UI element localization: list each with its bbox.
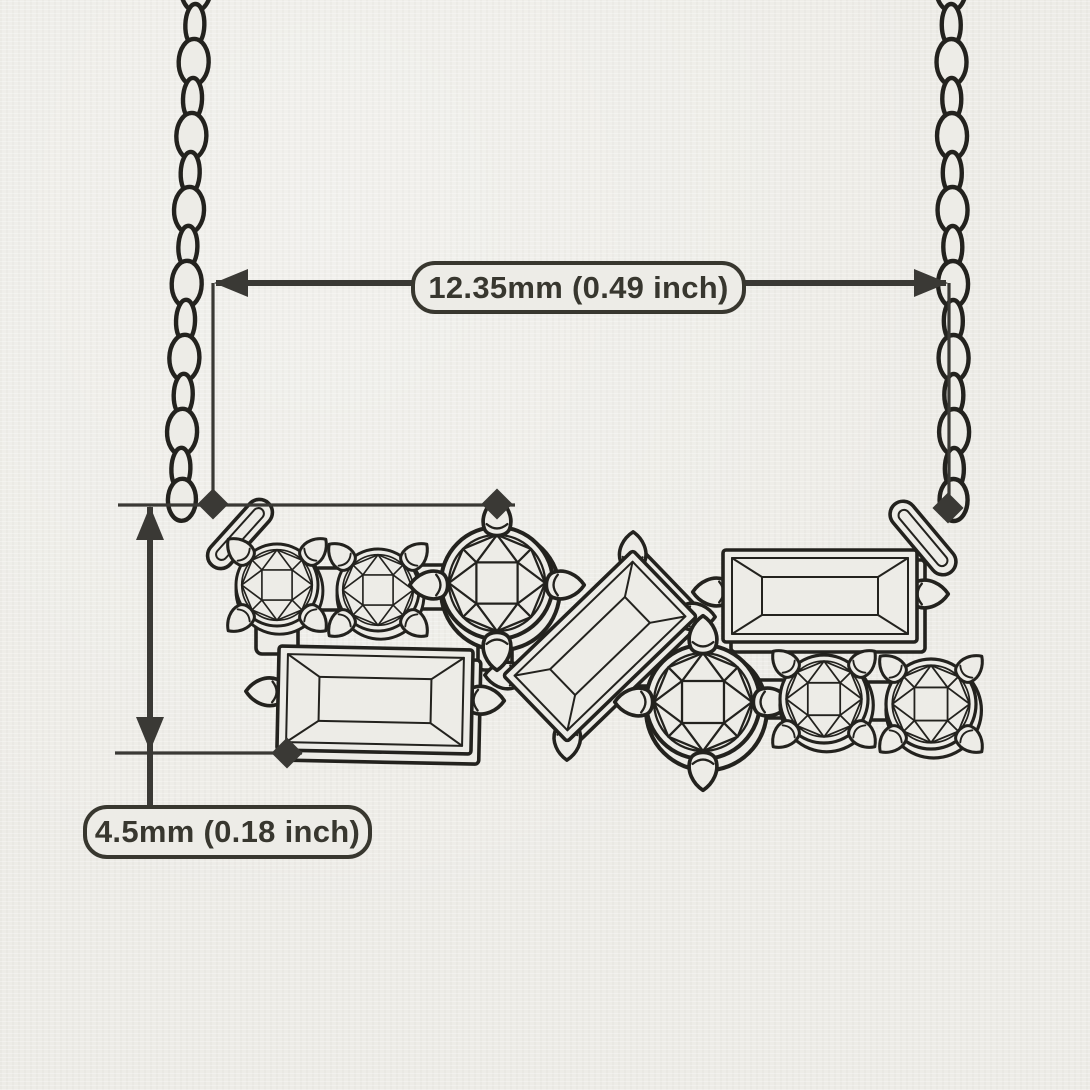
left-chain xyxy=(164,0,212,521)
width-dimension-label: 12.35mm (0.49 inch) xyxy=(411,261,746,314)
baguette-stone-top-right xyxy=(693,550,949,652)
height-dimension-label: 4.5mm (0.18 inch) xyxy=(83,805,372,859)
necklace-technical-drawing: 12.35mm (0.49 inch) 4.5mm (0.18 inch) xyxy=(0,0,1090,1090)
right-chain xyxy=(936,0,970,521)
arrow-down-icon xyxy=(136,717,164,751)
anchor-diamond-icon xyxy=(197,488,228,519)
drawing-canvas xyxy=(0,0,1090,1090)
round-stone-6 xyxy=(872,648,990,760)
round-stone-1 xyxy=(220,531,334,639)
round-stone-5 xyxy=(765,643,883,755)
pendant-cluster xyxy=(220,498,990,791)
arrow-left-icon xyxy=(214,269,248,297)
arrow-up-icon xyxy=(136,506,164,540)
width-dimension-text: 12.35mm (0.49 inch) xyxy=(428,270,728,306)
height-dimension-text: 4.5mm (0.18 inch) xyxy=(95,814,360,850)
